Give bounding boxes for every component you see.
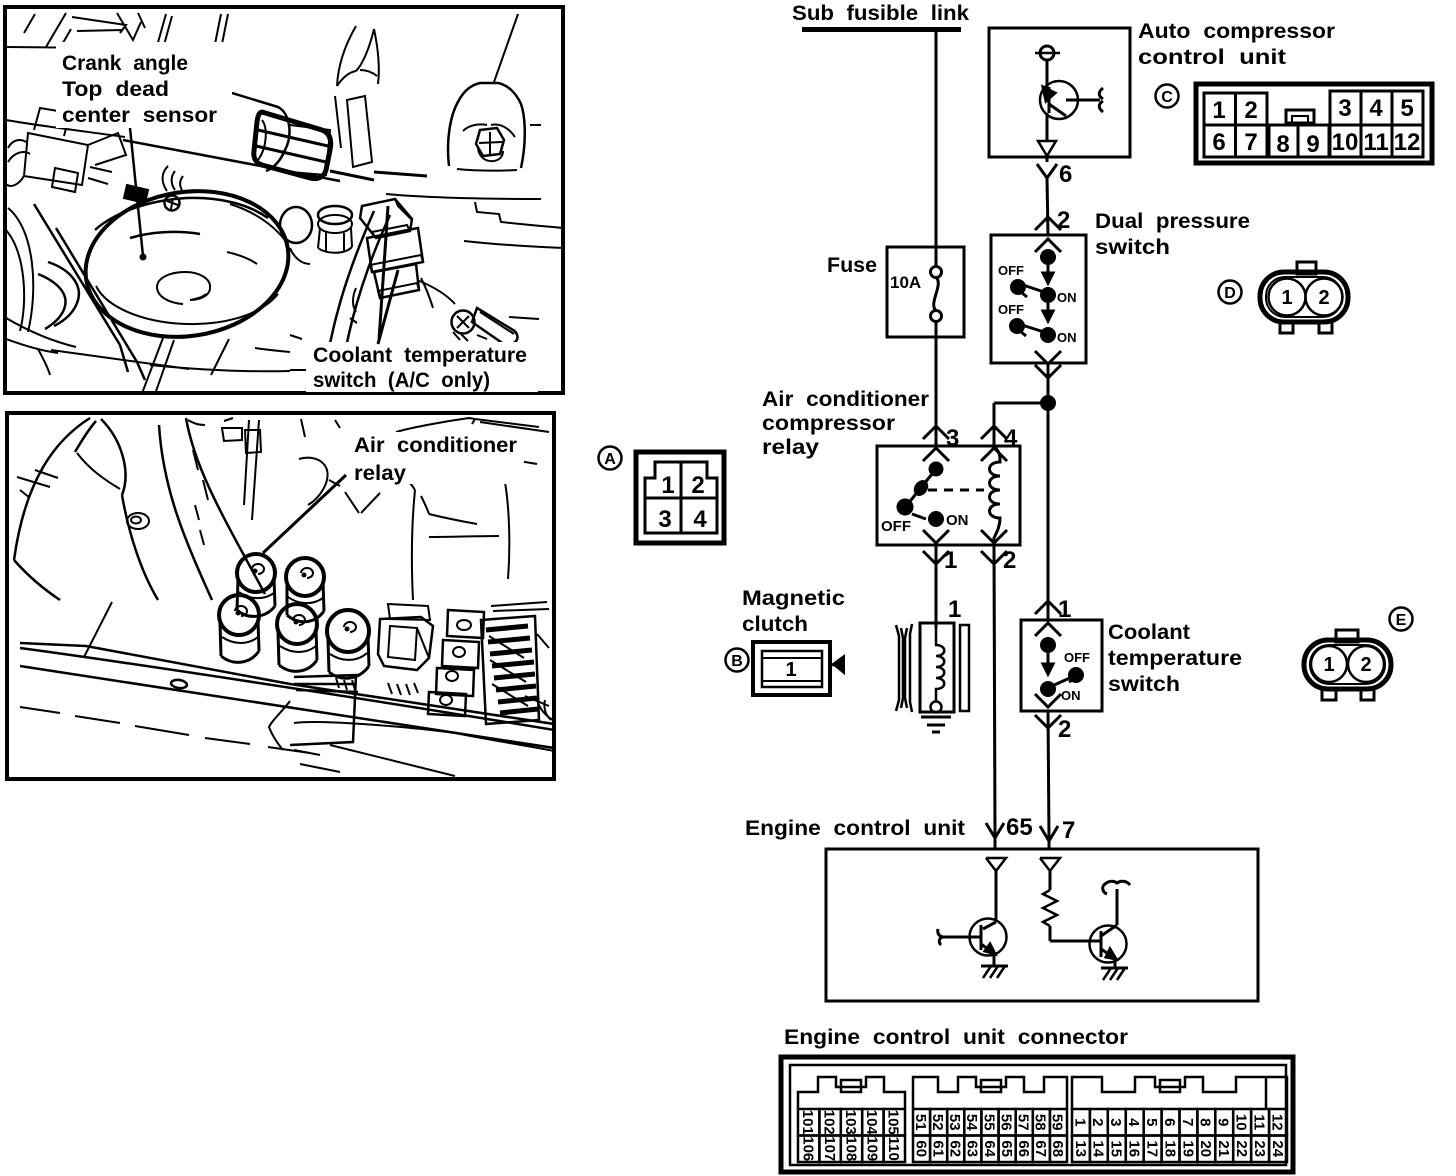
svg-text:3: 3 xyxy=(1338,95,1351,122)
svg-text:2: 2 xyxy=(691,472,704,499)
svg-text:103: 103 xyxy=(842,1110,859,1135)
svg-text:temperature: temperature xyxy=(1108,647,1242,670)
svg-text:1: 1 xyxy=(1281,287,1292,309)
svg-text:1: 1 xyxy=(1323,654,1334,676)
svg-text:Auto compressor: Auto compressor xyxy=(1138,20,1335,43)
svg-text:3: 3 xyxy=(658,506,671,533)
svg-text:3: 3 xyxy=(1107,1118,1124,1126)
svg-text:4: 4 xyxy=(1004,425,1018,452)
svg-text:2: 2 xyxy=(1089,1118,1106,1126)
svg-text:9: 9 xyxy=(1215,1118,1232,1126)
svg-text:Air conditioner: Air conditioner xyxy=(762,388,929,411)
svg-text:110: 110 xyxy=(885,1137,902,1161)
svg-text:23: 23 xyxy=(1251,1140,1268,1157)
svg-text:Sub fusible link: Sub fusible link xyxy=(792,2,969,25)
svg-text:Coolant temperature: Coolant temperature xyxy=(313,344,527,367)
svg-text:2: 2 xyxy=(1318,287,1329,309)
svg-text:C: C xyxy=(1161,89,1173,106)
svg-text:52: 52 xyxy=(929,1114,946,1131)
svg-text:24: 24 xyxy=(1269,1140,1286,1157)
svg-text:clutch: clutch xyxy=(742,613,808,636)
svg-text:2: 2 xyxy=(1244,97,1257,124)
svg-text:57: 57 xyxy=(1014,1114,1031,1131)
svg-text:16: 16 xyxy=(1125,1140,1142,1157)
svg-text:13: 13 xyxy=(1072,1140,1089,1157)
svg-text:Top dead: Top dead xyxy=(62,78,169,101)
svg-text:18: 18 xyxy=(1161,1140,1178,1157)
svg-text:4: 4 xyxy=(1125,1118,1142,1127)
svg-text:14: 14 xyxy=(1090,1140,1107,1157)
svg-text:58: 58 xyxy=(1032,1114,1049,1131)
svg-text:21: 21 xyxy=(1215,1140,1232,1157)
svg-text:7: 7 xyxy=(1179,1118,1196,1126)
svg-text:switch (A/C only): switch (A/C only) xyxy=(313,369,490,392)
svg-text:22: 22 xyxy=(1233,1140,1250,1157)
svg-text:2: 2 xyxy=(1360,654,1371,676)
svg-text:2: 2 xyxy=(1057,207,1070,234)
svg-text:OFF: OFF xyxy=(998,263,1024,278)
svg-text:switch: switch xyxy=(1108,673,1180,696)
svg-text:relay: relay xyxy=(762,436,819,459)
svg-text:59: 59 xyxy=(1049,1114,1066,1131)
svg-text:4: 4 xyxy=(693,506,707,533)
svg-text:107: 107 xyxy=(821,1136,838,1161)
svg-text:53: 53 xyxy=(946,1114,963,1131)
svg-text:67: 67 xyxy=(1032,1140,1049,1157)
svg-text:17: 17 xyxy=(1143,1140,1160,1157)
svg-text:E: E xyxy=(1396,612,1407,629)
svg-text:20: 20 xyxy=(1197,1140,1214,1157)
svg-text:5: 5 xyxy=(1400,95,1413,122)
svg-text:ON: ON xyxy=(1057,290,1077,305)
svg-text:compressor: compressor xyxy=(762,412,895,435)
svg-text:65: 65 xyxy=(1006,814,1033,841)
svg-text:109: 109 xyxy=(864,1136,881,1161)
svg-text:6: 6 xyxy=(1212,129,1225,156)
svg-text:Fuse: Fuse xyxy=(827,254,877,277)
svg-text:OFF: OFF xyxy=(1064,650,1090,665)
svg-text:ON: ON xyxy=(1057,330,1077,345)
svg-text:1: 1 xyxy=(661,472,674,499)
svg-text:101: 101 xyxy=(799,1110,816,1135)
svg-text:center sensor: center sensor xyxy=(62,104,217,127)
svg-text:10A: 10A xyxy=(890,273,921,292)
svg-text:51: 51 xyxy=(912,1114,929,1131)
svg-text:8: 8 xyxy=(1276,131,1289,158)
svg-text:1: 1 xyxy=(944,547,957,574)
svg-text:10: 10 xyxy=(1232,1114,1249,1131)
svg-text:9: 9 xyxy=(1306,131,1319,158)
svg-text:3: 3 xyxy=(946,425,959,452)
svg-text:19: 19 xyxy=(1179,1140,1196,1157)
svg-text:A: A xyxy=(604,451,616,468)
svg-text:12: 12 xyxy=(1268,1114,1285,1131)
svg-text:1: 1 xyxy=(785,659,796,681)
svg-text:105: 105 xyxy=(885,1110,902,1135)
svg-text:8: 8 xyxy=(1197,1118,1214,1126)
svg-text:2: 2 xyxy=(1058,716,1071,743)
svg-text:56: 56 xyxy=(997,1114,1014,1131)
svg-text:1: 1 xyxy=(948,596,961,623)
svg-text:control unit: control unit xyxy=(1138,46,1286,69)
svg-text:switch: switch xyxy=(1095,236,1170,259)
svg-text:2: 2 xyxy=(1003,547,1016,574)
svg-text:OFF: OFF xyxy=(998,302,1024,317)
svg-text:12: 12 xyxy=(1394,129,1421,156)
svg-text:B: B xyxy=(731,653,743,670)
svg-text:D: D xyxy=(1224,285,1236,302)
svg-text:5: 5 xyxy=(1143,1118,1160,1126)
svg-text:Engine control unit: Engine control unit xyxy=(745,817,965,840)
svg-text:6: 6 xyxy=(1161,1118,1178,1126)
svg-text:7: 7 xyxy=(1244,129,1257,156)
svg-text:65: 65 xyxy=(998,1140,1015,1157)
svg-text:4: 4 xyxy=(1369,95,1383,122)
svg-text:64: 64 xyxy=(981,1140,998,1157)
svg-text:102: 102 xyxy=(820,1110,837,1135)
svg-text:Engine control unit connector: Engine control unit connector xyxy=(784,1026,1128,1049)
svg-text:60: 60 xyxy=(912,1140,929,1157)
svg-text:Air conditioner: Air conditioner xyxy=(354,434,517,457)
svg-text:15: 15 xyxy=(1108,1140,1125,1157)
svg-text:66: 66 xyxy=(1015,1140,1032,1157)
svg-text:Magnetic: Magnetic xyxy=(742,587,845,610)
svg-text:11: 11 xyxy=(1250,1114,1267,1130)
svg-text:7: 7 xyxy=(1062,817,1075,844)
svg-text:ON: ON xyxy=(1061,688,1081,703)
svg-text:OFF: OFF xyxy=(881,518,911,535)
svg-text:108: 108 xyxy=(842,1136,859,1161)
svg-text:61: 61 xyxy=(929,1140,946,1157)
svg-text:1: 1 xyxy=(1212,97,1225,124)
svg-text:54: 54 xyxy=(963,1114,980,1131)
svg-text:106: 106 xyxy=(799,1136,816,1161)
svg-text:Crank angle: Crank angle xyxy=(62,52,188,75)
svg-text:relay: relay xyxy=(354,462,406,485)
svg-text:10: 10 xyxy=(1332,129,1359,156)
svg-text:ON: ON xyxy=(946,512,969,529)
svg-text:11: 11 xyxy=(1363,129,1388,156)
svg-text:62: 62 xyxy=(947,1140,964,1157)
svg-text:63: 63 xyxy=(964,1140,981,1157)
svg-text:68: 68 xyxy=(1049,1140,1066,1157)
svg-text:104: 104 xyxy=(863,1110,880,1136)
svg-text:1: 1 xyxy=(1071,1118,1088,1126)
svg-text:55: 55 xyxy=(980,1114,997,1131)
svg-text:Coolant: Coolant xyxy=(1108,621,1190,644)
svg-text:6: 6 xyxy=(1059,161,1072,188)
svg-text:Dual pressure: Dual pressure xyxy=(1095,210,1250,233)
